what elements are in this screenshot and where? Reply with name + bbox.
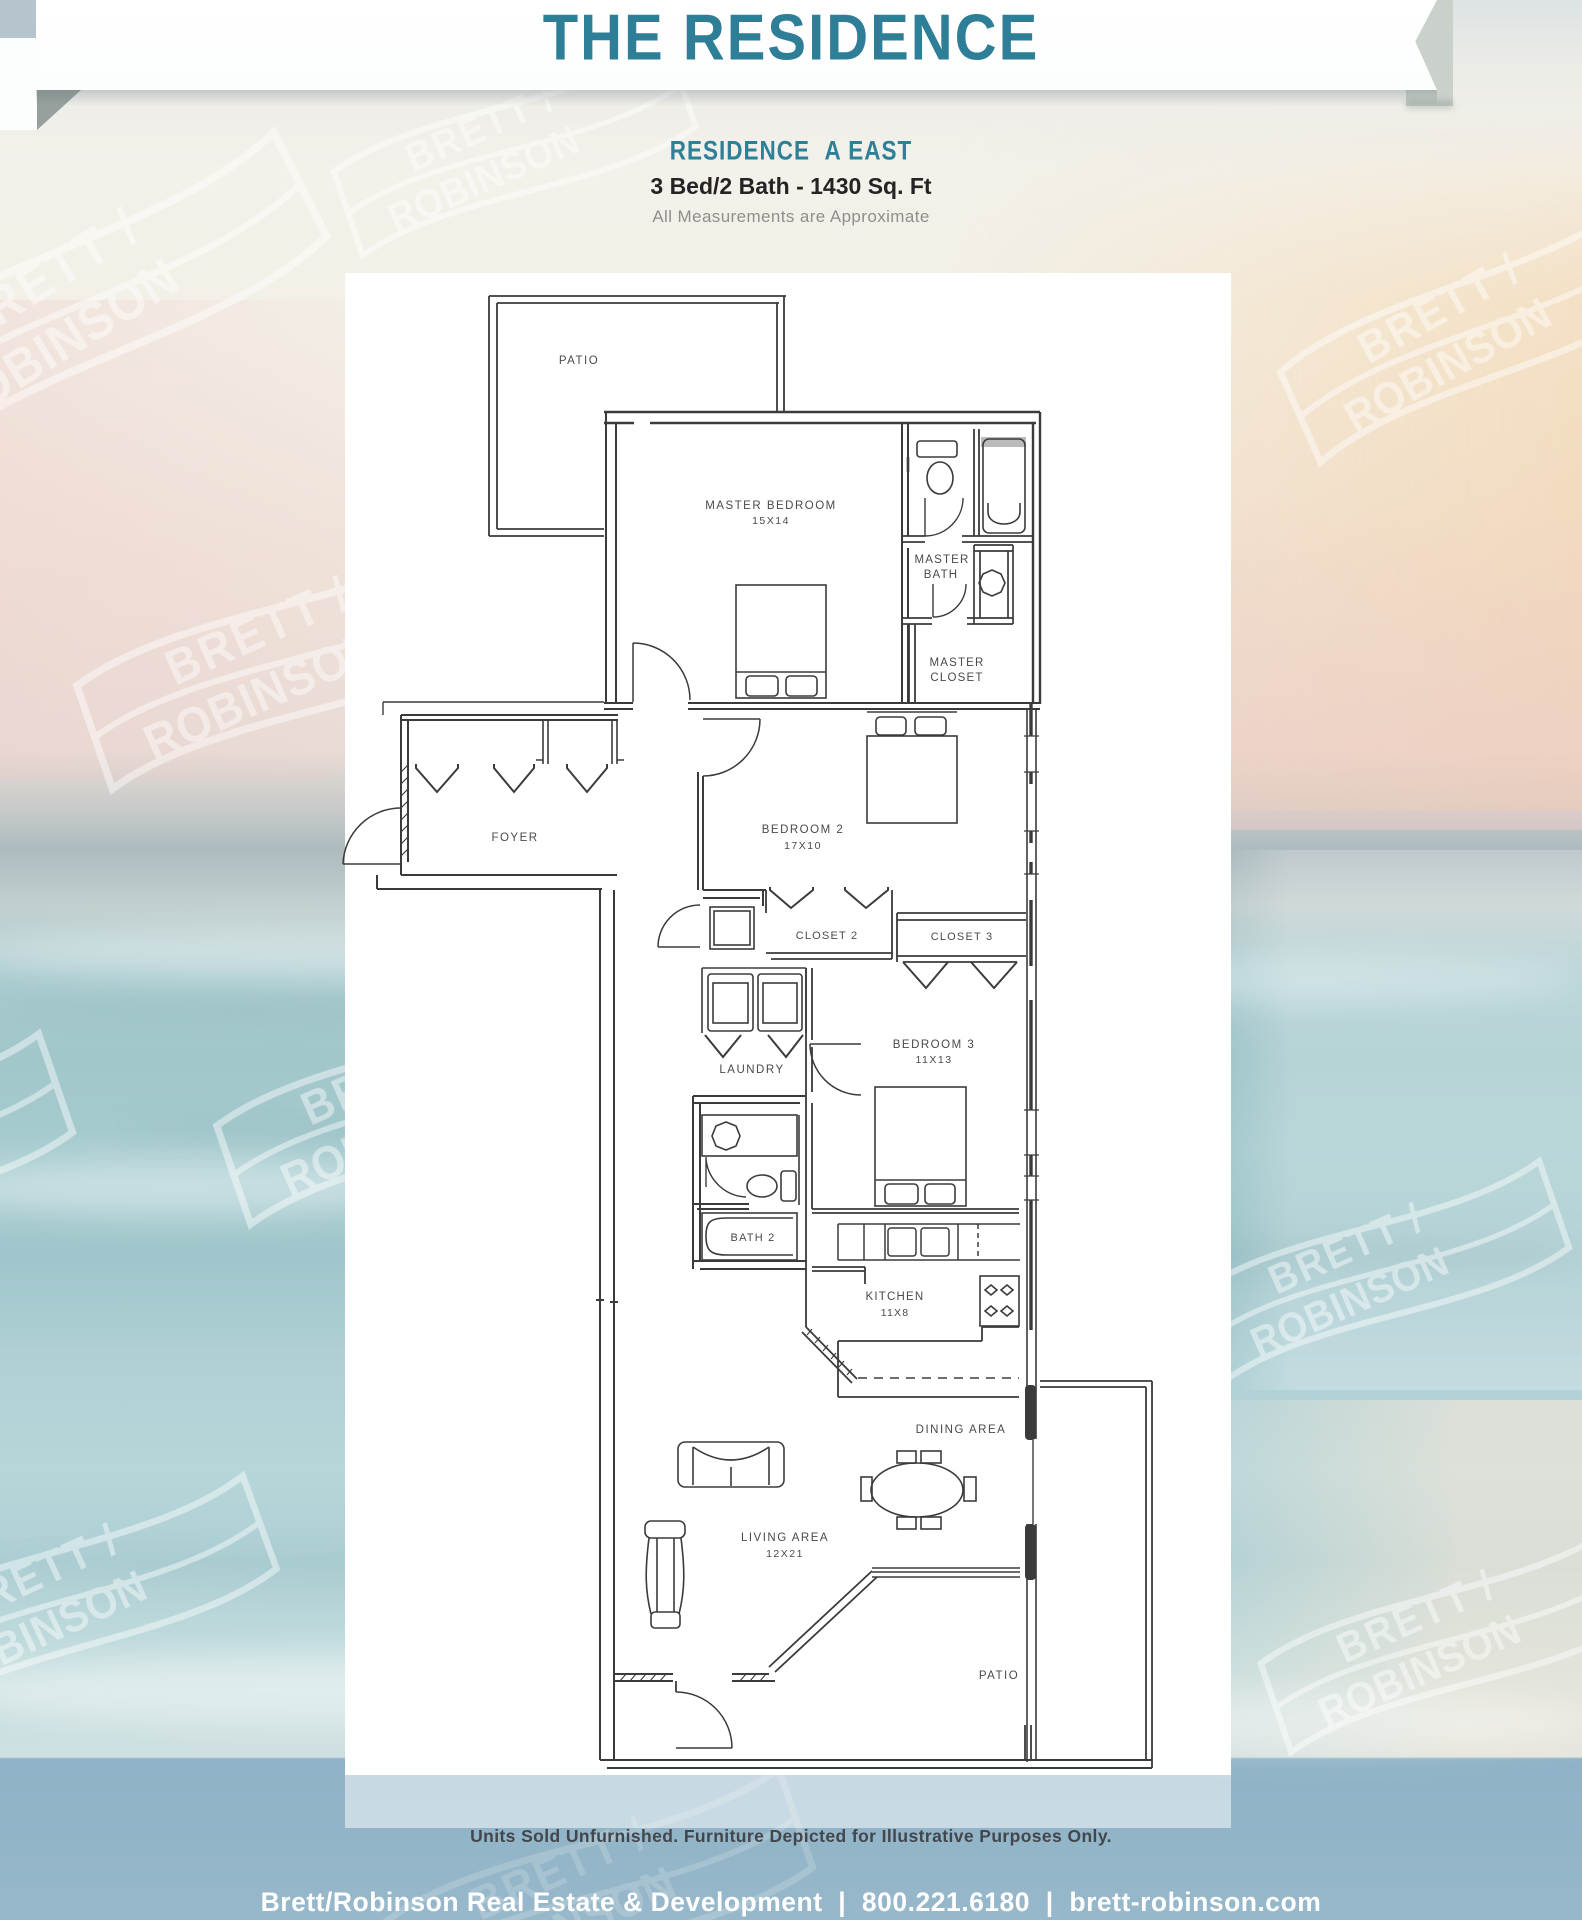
svg-text:MASTER: MASTER	[929, 657, 984, 669]
svg-text:KITCHEN: KITCHEN	[866, 1291, 925, 1303]
svg-text:CLOSET 2: CLOSET 2	[796, 930, 859, 942]
svg-text:LAUNDRY: LAUNDRY	[719, 1064, 784, 1076]
svg-text:17X10: 17X10	[784, 840, 822, 852]
svg-text:BEDROOM 2: BEDROOM 2	[762, 824, 845, 836]
svg-text:DINING AREA: DINING AREA	[916, 1424, 1007, 1436]
svg-text:BATH 2: BATH 2	[731, 1232, 776, 1244]
svg-text:CLOSET: CLOSET	[930, 672, 983, 684]
svg-text:BEDROOM 3: BEDROOM 3	[893, 1039, 976, 1051]
svg-text:11X13: 11X13	[915, 1054, 952, 1066]
svg-text:PATIO: PATIO	[979, 1670, 1019, 1682]
svg-text:BATH: BATH	[924, 569, 959, 581]
svg-text:FOYER: FOYER	[491, 832, 538, 844]
svg-text:12X21: 12X21	[766, 1548, 804, 1560]
svg-text:MASTER: MASTER	[914, 554, 969, 566]
svg-text:15X14: 15X14	[752, 515, 790, 527]
svg-text:CLOSET 3: CLOSET 3	[931, 931, 994, 943]
svg-text:MASTER BEDROOM: MASTER BEDROOM	[705, 500, 837, 512]
svg-text:11X8: 11X8	[881, 1307, 910, 1319]
svg-text:PATIO: PATIO	[559, 355, 599, 367]
svg-text:LIVING AREA: LIVING AREA	[741, 1532, 829, 1544]
